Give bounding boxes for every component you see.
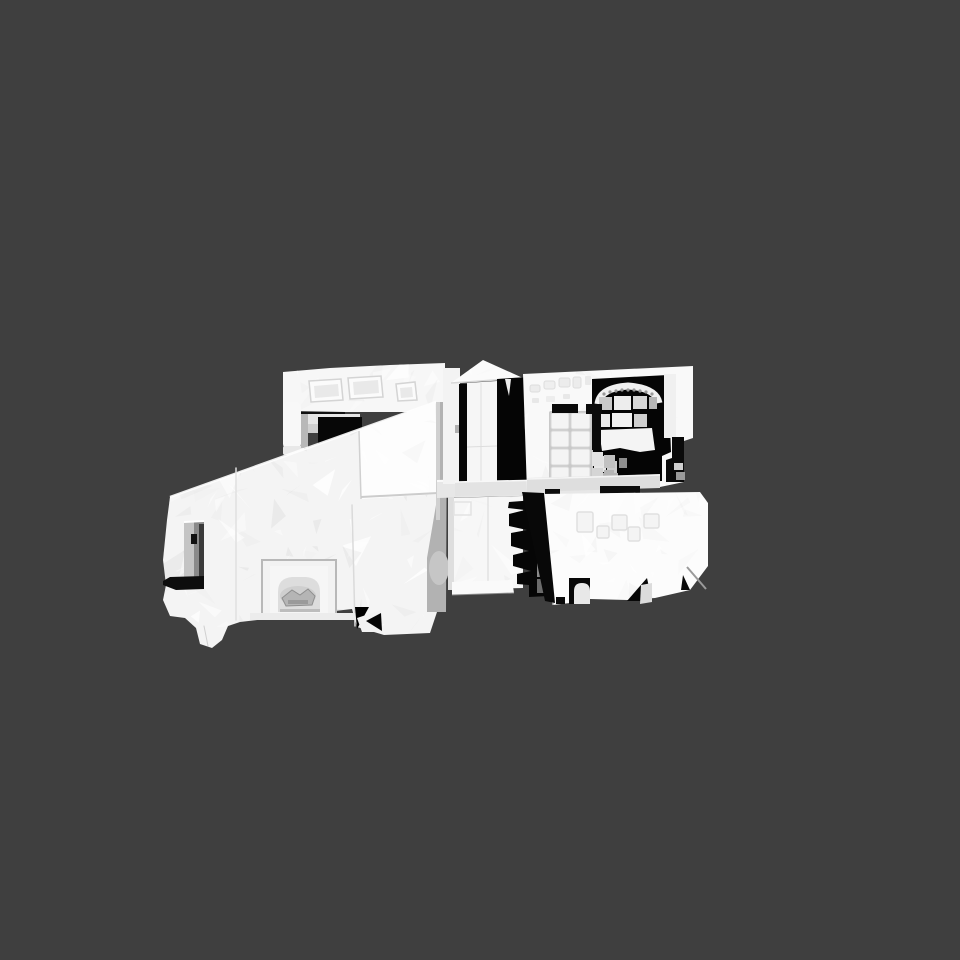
porch-door-panel: [467, 381, 497, 484]
car-object: [280, 586, 316, 606]
ledge-sill: [452, 580, 514, 595]
embossed-window-panel: [348, 376, 383, 399]
kitchen-right-column: [664, 374, 676, 438]
embossed-window-panel: [396, 382, 417, 401]
kitchen-room: [514, 352, 693, 495]
embossed-window-panel: [309, 379, 343, 402]
3d-viewport-canvas[interactable]: [0, 0, 960, 960]
